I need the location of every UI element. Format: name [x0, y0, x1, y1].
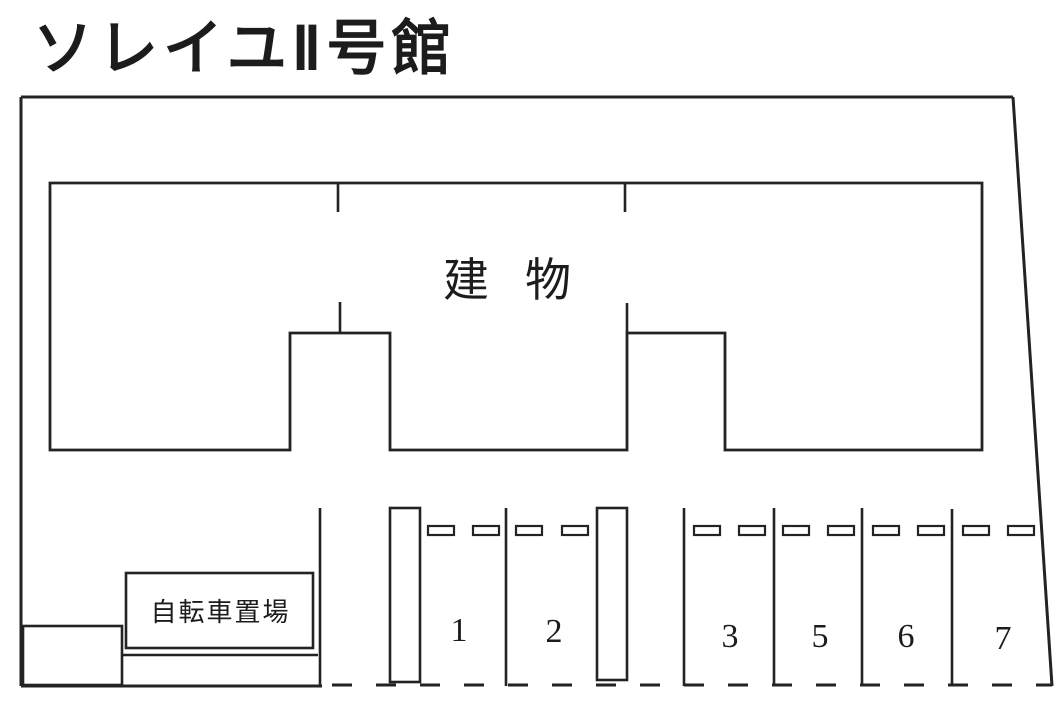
- building-outline: [50, 183, 982, 450]
- stall-head-dashes: [428, 526, 1034, 535]
- pillar-right: [597, 508, 627, 680]
- stall-dash: [694, 526, 720, 535]
- stall-dash: [516, 526, 542, 535]
- parking-space-label-6: 6: [884, 620, 928, 654]
- stall-dash: [783, 526, 809, 535]
- stall-dash: [739, 526, 765, 535]
- parking-space-label-5: 5: [798, 620, 842, 654]
- stall-dash: [428, 526, 454, 535]
- parking-space-label-7: 7: [981, 622, 1025, 656]
- parking-space-label-2: 2: [532, 615, 576, 649]
- building-label: 建物: [443, 244, 607, 310]
- pillar-left: [390, 508, 420, 682]
- parking-space-label-1: 1: [437, 614, 481, 648]
- parking-space-label-3: 3: [708, 620, 752, 654]
- bicycle-area-label: 自転車置場: [126, 573, 313, 648]
- stall-dash: [473, 526, 499, 535]
- site-plan-canvas: ソレイユⅡ号館: [0, 0, 1064, 715]
- stall-dash: [918, 526, 944, 535]
- stall-dash: [828, 526, 854, 535]
- stall-dash: [873, 526, 899, 535]
- site-boundary-right-slanted: [1013, 97, 1052, 686]
- stall-dash: [1008, 526, 1034, 535]
- stall-dash: [562, 526, 588, 535]
- corner-storage-box: [23, 626, 122, 685]
- stall-dash: [963, 526, 989, 535]
